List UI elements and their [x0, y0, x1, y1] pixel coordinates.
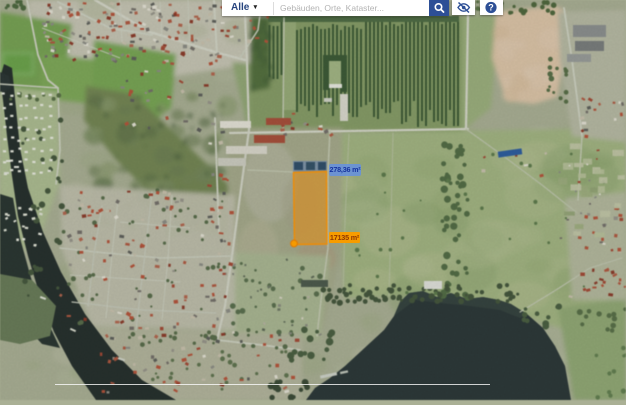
- svg-text:?: ?: [488, 3, 494, 13]
